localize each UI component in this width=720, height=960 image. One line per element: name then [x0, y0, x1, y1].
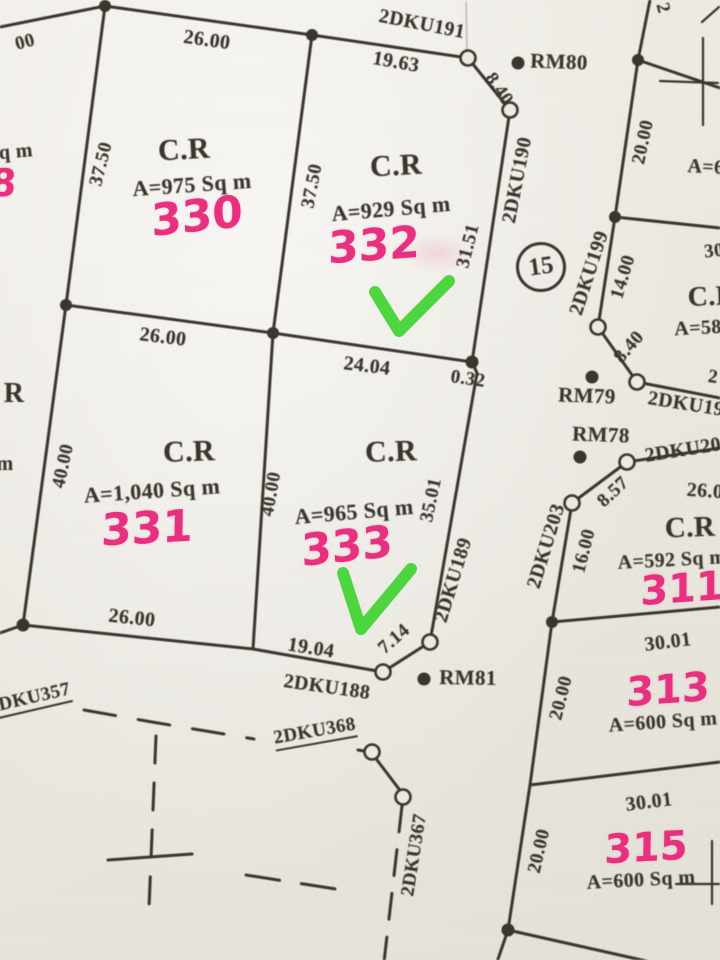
cadastral-map: 00 26.00 2DKU191 19.63 8.40 RM80 2 20.00… — [0, 0, 720, 960]
plot-number-handwritten: 332 — [328, 221, 420, 272]
plot-number-annotations: 330 332 331 333 311 313 315 8 — [0, 0, 720, 960]
plot-number-handwritten: 313 — [626, 667, 709, 713]
plot-number-handwritten: 331 — [101, 505, 194, 554]
plot-number-handwritten: 333 — [301, 520, 394, 574]
plot-number-handwritten: 311 — [640, 566, 720, 612]
plot-number-handwritten: 315 — [604, 826, 688, 870]
plot-number-handwritten: 330 — [151, 190, 244, 244]
plot-number-handwritten: 8 — [0, 164, 18, 202]
